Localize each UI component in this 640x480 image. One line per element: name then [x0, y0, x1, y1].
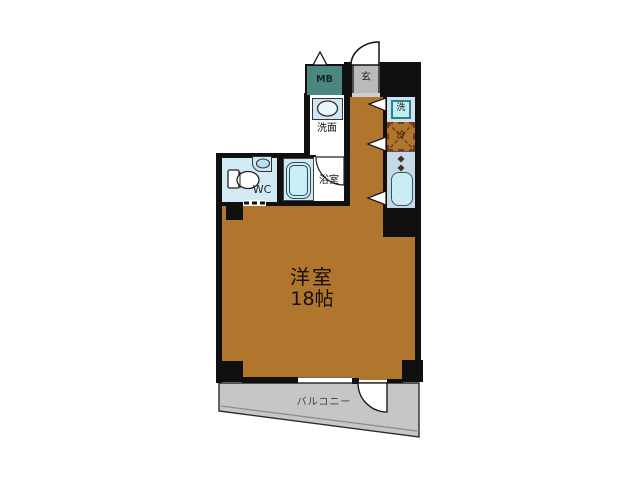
refrigerator-label: 冷 — [387, 122, 415, 151]
door-marker — [368, 191, 386, 205]
door-marker — [369, 98, 386, 111]
meter-box-label: MB — [305, 64, 344, 97]
toilet-label: WC — [246, 183, 278, 196]
washstand-sink — [318, 101, 338, 116]
entrance-label: 玄 — [352, 62, 380, 95]
burner-diamond — [398, 165, 405, 172]
door-marker — [368, 137, 386, 151]
washstand-label: 洗面 — [306, 119, 348, 134]
balcony-door-arc — [358, 383, 387, 412]
bathroom-label: 浴室 — [312, 171, 346, 186]
washer-label: 洗 — [391, 100, 411, 119]
burner-diamond — [398, 156, 405, 163]
floor-plan: MB 玄 洗面 浴室 WC 洗 冷 洋室 18帖 バルコニー — [0, 0, 640, 480]
corner-sink-basin — [257, 159, 270, 168]
balcony-label: バルコニー — [288, 393, 360, 408]
main-room-size-label: 18帖 — [252, 284, 372, 311]
